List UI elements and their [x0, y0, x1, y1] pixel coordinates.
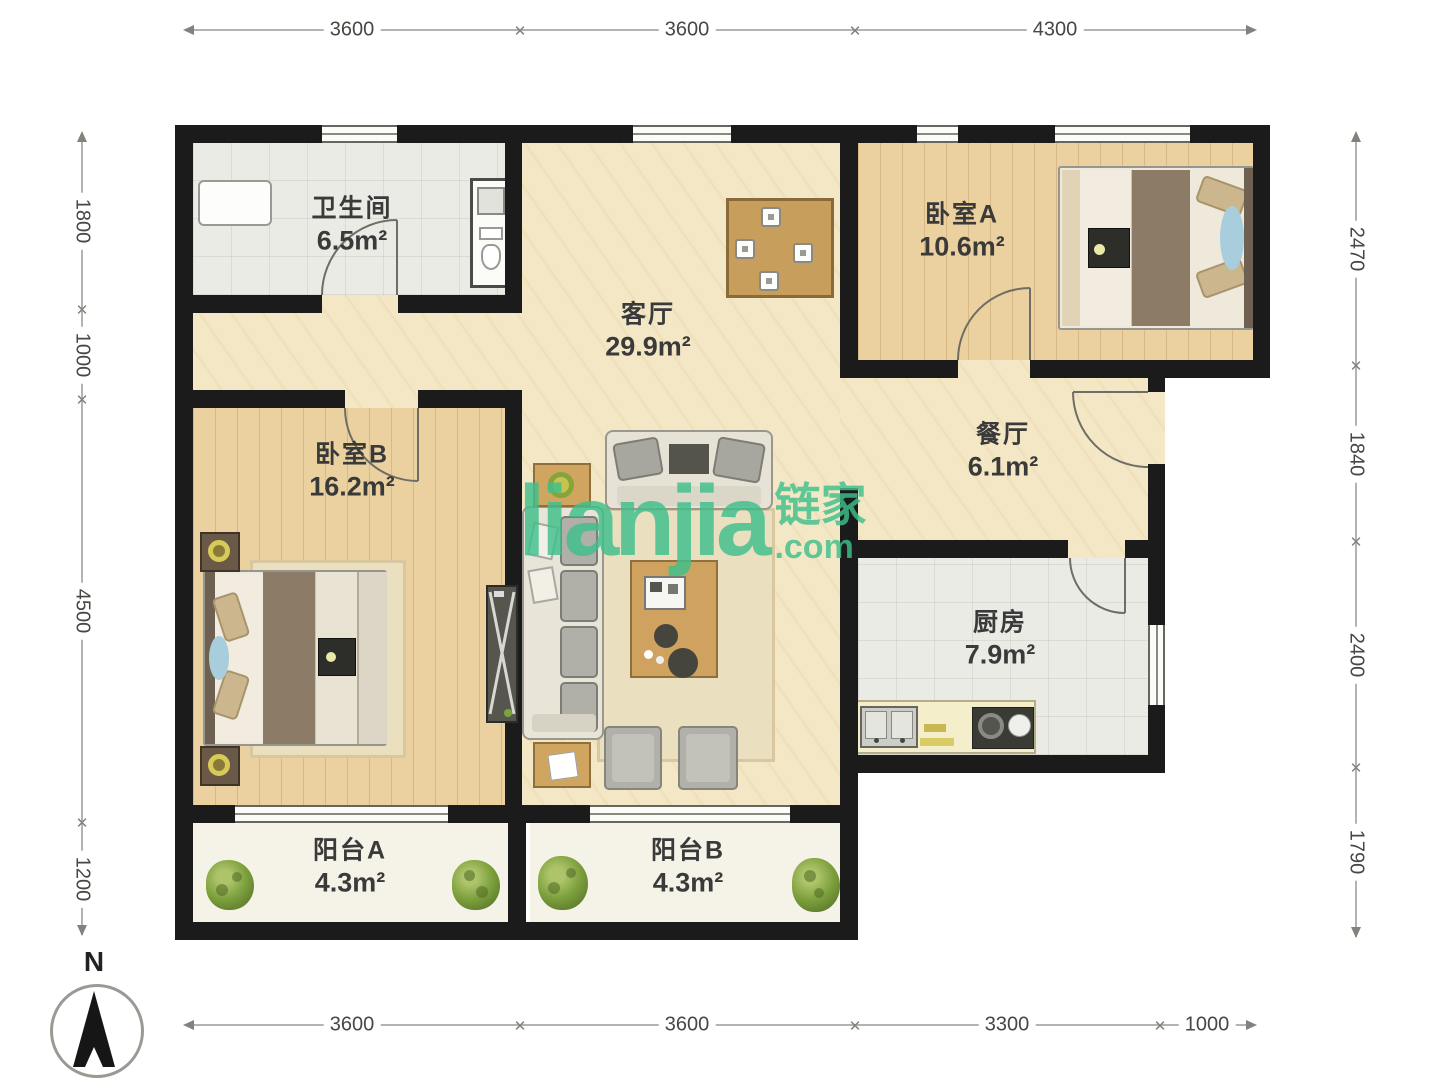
dimension-value: 4500: [71, 583, 94, 640]
bed-frame-edge: [357, 572, 387, 744]
plant: [792, 858, 840, 912]
wall: [508, 823, 526, 922]
wall: [175, 390, 345, 408]
nightstand: [200, 532, 240, 572]
dimension-value: 3600: [659, 1014, 716, 1037]
room-name: 阳台B: [651, 836, 725, 867]
wall: [418, 390, 522, 408]
compass-north-label: N: [84, 946, 104, 978]
bed-tray: [318, 638, 356, 676]
dimension-value: 3600: [659, 19, 716, 42]
arrow-down-icon: [1351, 927, 1361, 938]
compass-needle-notch: [85, 1047, 103, 1067]
sofa-arm: [532, 714, 596, 732]
toilet-bowl: [481, 244, 501, 270]
watermark-domain: .com: [774, 530, 866, 564]
ottoman-seat: [612, 734, 654, 782]
watermark-brand-cn: 链家: [774, 482, 866, 528]
dimension-value: 2400: [1345, 627, 1368, 684]
wall: [175, 922, 858, 940]
ottoman: [678, 726, 738, 790]
tv-cabinet: [486, 585, 518, 723]
room-label-bedroom-a: 卧室A 10.6m²: [919, 200, 1005, 265]
sink-basin: [865, 711, 887, 739]
sink-icon: [477, 187, 505, 215]
dimension-tick: ✕: [76, 814, 89, 832]
room-area: 7.9m²: [965, 639, 1036, 673]
place-setting: [793, 243, 813, 263]
room-label-balcony-b: 阳台B 4.3m²: [651, 836, 725, 901]
wall: [175, 295, 322, 313]
wall: [1253, 125, 1270, 378]
bowl: [668, 648, 698, 678]
room-name: 餐厅: [968, 420, 1039, 451]
arrow-up-icon: [77, 131, 87, 142]
wall: [522, 805, 590, 823]
room-name: 卧室A: [919, 200, 1005, 231]
ottoman-seat: [686, 734, 730, 782]
dimension-tick: ✕: [514, 1017, 527, 1035]
dimension-tick: ✕: [849, 22, 862, 40]
dimension-value: 4300: [1027, 19, 1084, 42]
arrow-right-icon: [1246, 1020, 1257, 1030]
tray-item: [668, 584, 678, 594]
wall: [840, 125, 858, 378]
room-area: 16.2m²: [309, 471, 395, 505]
window: [1055, 125, 1190, 143]
wall: [958, 125, 1055, 143]
dimension-tick: ✕: [1350, 759, 1363, 777]
dimension-value: 1840: [1345, 426, 1368, 483]
counter-mat: [924, 724, 946, 732]
bowl: [654, 624, 678, 648]
room-label-balcony-a: 阳台A 4.3m²: [313, 836, 387, 901]
dimension-tick: ✕: [849, 1017, 862, 1035]
dimension-tick: ✕: [76, 301, 89, 319]
dimension-value: 3600: [324, 1014, 381, 1037]
room-name: 阳台A: [313, 836, 387, 867]
toilet-tank: [479, 227, 503, 240]
lianjia-watermark: lianjia 链家 .com: [518, 482, 866, 564]
dimension-tick: ✕: [76, 391, 89, 409]
room-label-bathroom: 卫生间 6.5m²: [311, 194, 392, 259]
sink-basin: [891, 711, 913, 739]
bathtub: [198, 180, 272, 226]
pillow-accent: [209, 636, 229, 680]
sliding-door: [590, 805, 790, 823]
pillow: [1195, 257, 1250, 300]
dimension-value: 3300: [979, 1014, 1036, 1037]
place-setting: [761, 207, 781, 227]
arrow-left-icon: [183, 25, 194, 35]
room-name: 卫生间: [311, 194, 392, 225]
room-area: 6.1m²: [968, 451, 1039, 485]
dimension-tick: ✕: [1350, 357, 1363, 375]
coffee-table: [630, 560, 718, 678]
floor-plan-page: 卫生间 6.5m² 客厅 29.9m² 卧室A 10.6m² 餐厅 6.1m² …: [0, 0, 1440, 1080]
wall: [397, 125, 633, 143]
place-setting: [759, 271, 779, 291]
dimension-value: 1200: [71, 851, 94, 908]
bed: [1058, 166, 1254, 330]
room-area: 10.6m²: [919, 231, 1005, 265]
room-name: 厨房: [965, 608, 1036, 639]
dimension-tick: ✕: [514, 22, 527, 40]
watermark-brand-logo: lianjia: [518, 482, 766, 560]
dimension-value: 1800: [71, 193, 94, 250]
wall: [1148, 558, 1165, 625]
room-area: 29.9m²: [605, 331, 691, 365]
bed-frame-edge: [1062, 170, 1080, 326]
arrow-down-icon: [77, 925, 87, 936]
lamp-icon: [208, 754, 230, 776]
sofa-cushion: [560, 626, 598, 678]
arrow-up-icon: [1351, 131, 1361, 142]
plant: [538, 856, 588, 910]
dimension-value: 1000: [71, 327, 94, 384]
room-name: 客厅: [605, 300, 691, 331]
dimension-value: 1790: [1345, 824, 1368, 881]
book: [547, 751, 578, 781]
plant: [206, 860, 254, 910]
wall: [840, 755, 1165, 773]
wall: [1125, 540, 1165, 558]
counter-mat: [920, 738, 954, 746]
sliding-door: [235, 805, 448, 823]
dimension-value: 2470: [1345, 221, 1368, 278]
wall: [505, 143, 522, 313]
sink-drain: [900, 738, 905, 743]
room-area: 4.3m²: [651, 867, 725, 901]
bed: [203, 570, 387, 746]
wall: [448, 805, 522, 823]
cup: [644, 650, 653, 659]
cup: [656, 656, 664, 664]
plant: [452, 860, 500, 910]
wall: [398, 295, 522, 313]
lamp-icon: [208, 540, 230, 562]
pillow-accent: [1220, 206, 1244, 270]
lamp-dot: [326, 652, 336, 662]
bed-blanket: [263, 572, 315, 744]
tv-mark: [494, 591, 504, 597]
window: [633, 125, 731, 143]
room-label-dining: 餐厅 6.1m²: [968, 420, 1039, 485]
wall: [1148, 360, 1165, 392]
window: [322, 125, 397, 143]
dimension-tick: ✕: [1154, 1017, 1167, 1035]
burner-icon: [978, 713, 1004, 739]
ottoman: [604, 726, 662, 790]
room-label-living: 客厅 29.9m²: [605, 300, 691, 365]
wall: [858, 540, 1068, 558]
window: [1148, 625, 1165, 705]
dimension-tick: ✕: [1350, 533, 1363, 551]
wall: [175, 125, 322, 143]
window: [917, 125, 958, 143]
wall: [731, 125, 917, 143]
plant-dot: [504, 709, 512, 717]
side-table: [533, 742, 591, 788]
tray-item: [650, 582, 662, 592]
place-setting: [735, 239, 755, 259]
wall: [840, 773, 858, 940]
nightstand: [200, 746, 240, 786]
kitchen-counter: [856, 700, 1036, 754]
arrow-left-icon: [183, 1020, 194, 1030]
pot-icon: [1008, 714, 1031, 737]
sofa-cushion: [560, 570, 598, 622]
dining-table: [726, 198, 834, 298]
room-name: 卧室B: [309, 440, 395, 471]
arrow-right-icon: [1246, 25, 1257, 35]
dimension-value: 1000: [1179, 1014, 1236, 1037]
wall: [790, 805, 858, 823]
room-label-kitchen: 厨房 7.9m²: [965, 608, 1036, 673]
wall: [175, 805, 235, 823]
lamp-dot: [1094, 244, 1105, 255]
pillow: [1195, 175, 1250, 218]
room-area: 4.3m²: [313, 867, 387, 901]
room-area: 6.5m²: [311, 225, 392, 259]
room-label-bedroom-b: 卧室B 16.2m²: [309, 440, 395, 505]
sink-drain: [874, 738, 879, 743]
dimension-value: 3600: [324, 19, 381, 42]
bed-blanket: [1132, 170, 1190, 326]
